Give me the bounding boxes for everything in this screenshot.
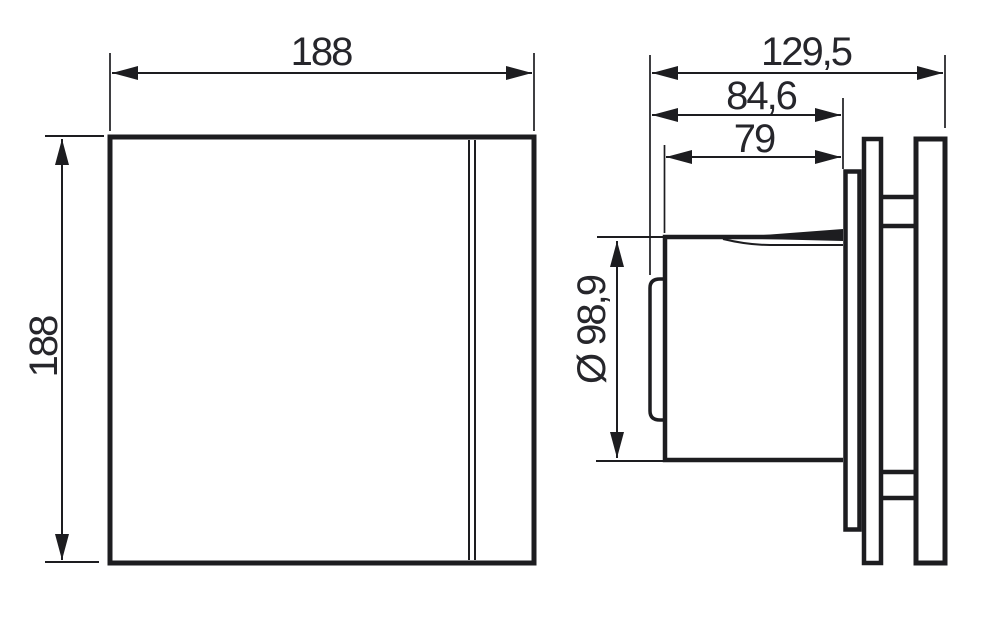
arrowhead-right xyxy=(917,66,943,80)
arrowhead-left xyxy=(112,66,138,80)
front-width-label: 188 xyxy=(291,32,352,72)
duct-diameter-label: Ø 98,9 xyxy=(572,276,612,384)
side-view xyxy=(650,139,945,563)
arrowhead-up xyxy=(610,241,624,267)
arrowhead-right xyxy=(506,66,532,80)
front-panel-outline xyxy=(110,137,534,563)
wall-plate xyxy=(846,172,860,530)
inner-frame-plate xyxy=(864,139,881,563)
arrowhead-left xyxy=(666,150,692,164)
front-view xyxy=(110,137,534,563)
arrowhead-right xyxy=(815,108,841,122)
front-cover-plate xyxy=(916,139,945,563)
arrowhead-left xyxy=(652,66,678,80)
arrowhead-down xyxy=(55,534,69,560)
front-height-label: 188 xyxy=(24,317,64,378)
technical-drawing-linework xyxy=(0,0,1000,624)
arrowhead-left xyxy=(652,108,678,122)
fan-body xyxy=(665,237,843,460)
drawing-canvas: 188 188 129,5 84,6 79 Ø 98,9 xyxy=(0,0,1000,624)
arrowhead-right xyxy=(815,150,841,164)
arrowhead-down xyxy=(610,432,624,458)
depth-to-wall-label: 84,6 xyxy=(726,76,796,116)
insert-depth-label: 79 xyxy=(734,119,775,159)
arrowhead-up xyxy=(55,139,69,165)
overall-depth-label: 129,5 xyxy=(761,32,851,72)
